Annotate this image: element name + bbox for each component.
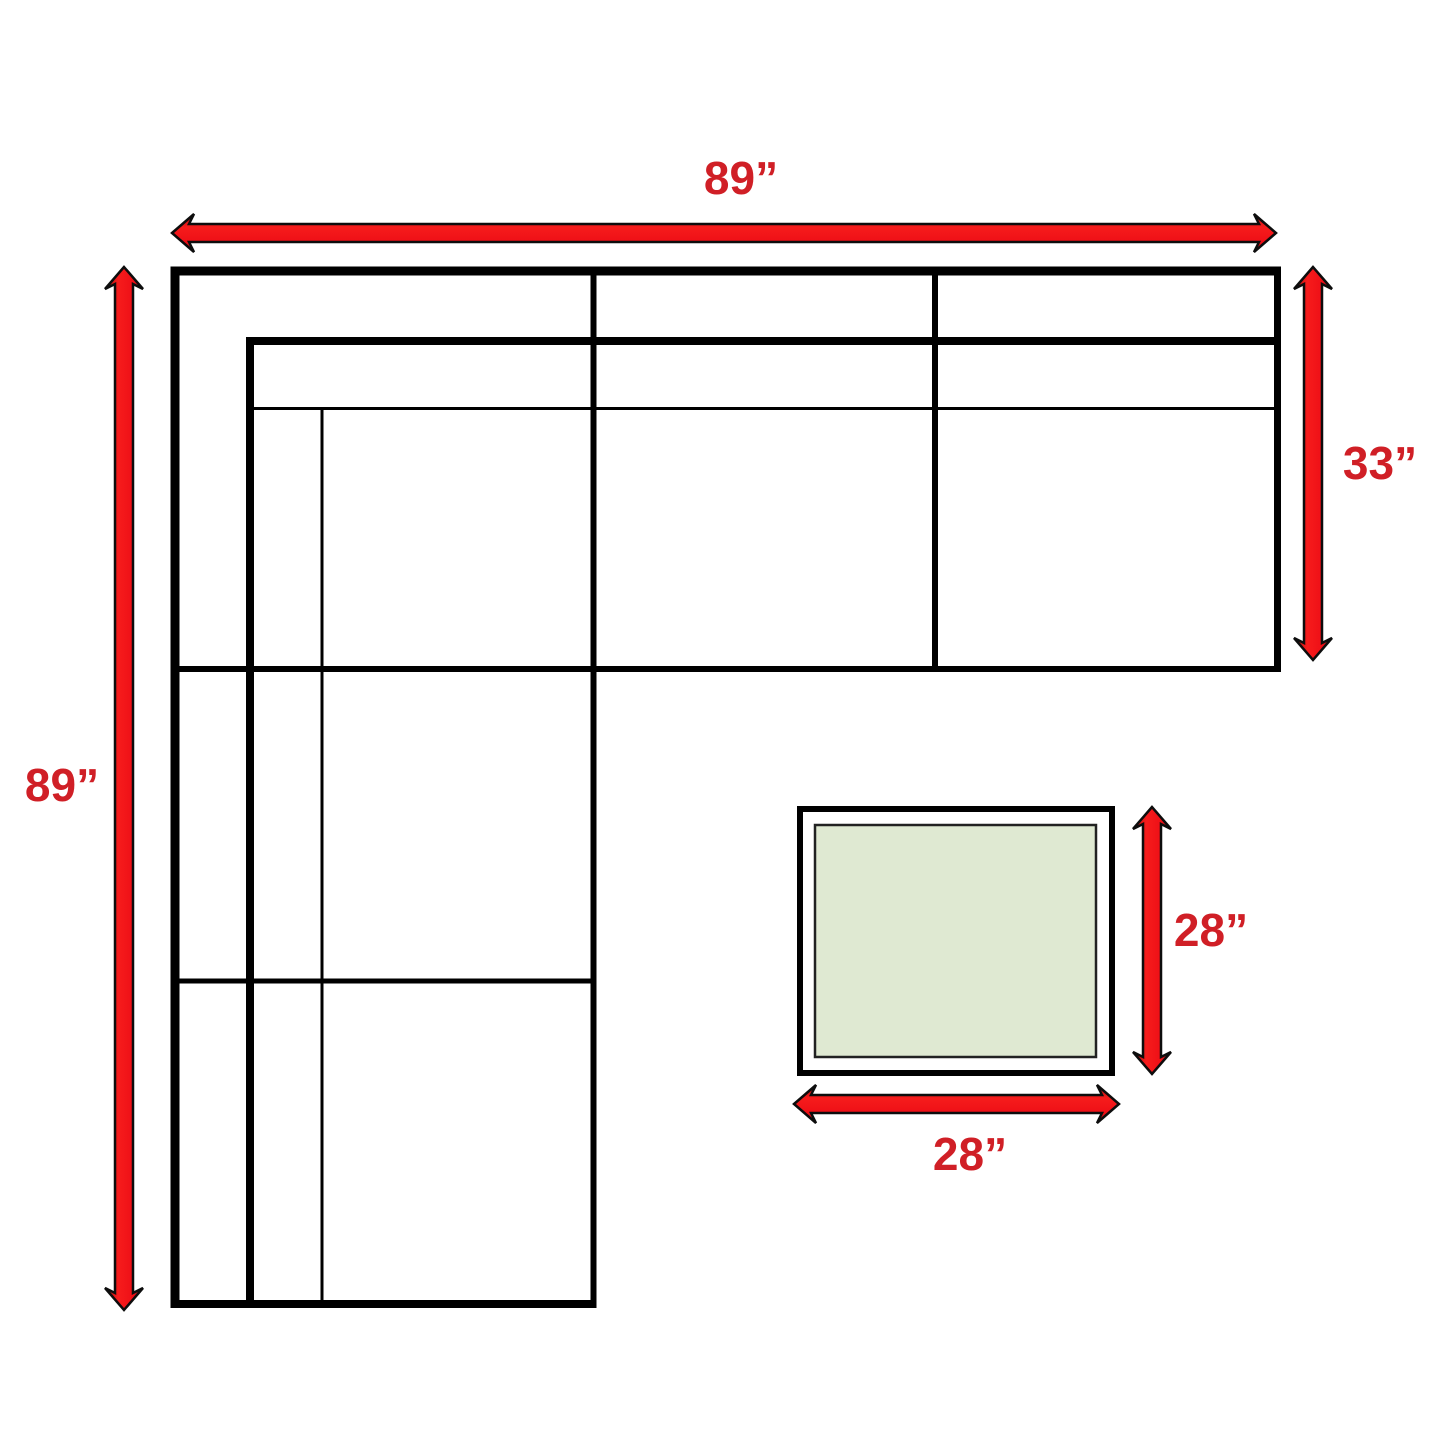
svg-text:28”: 28”	[933, 1128, 1007, 1180]
svg-text:33”: 33”	[1343, 437, 1417, 489]
svg-text:89”: 89”	[25, 759, 99, 811]
svg-text:28”: 28”	[1174, 904, 1248, 956]
svg-text:89”: 89”	[704, 152, 778, 204]
